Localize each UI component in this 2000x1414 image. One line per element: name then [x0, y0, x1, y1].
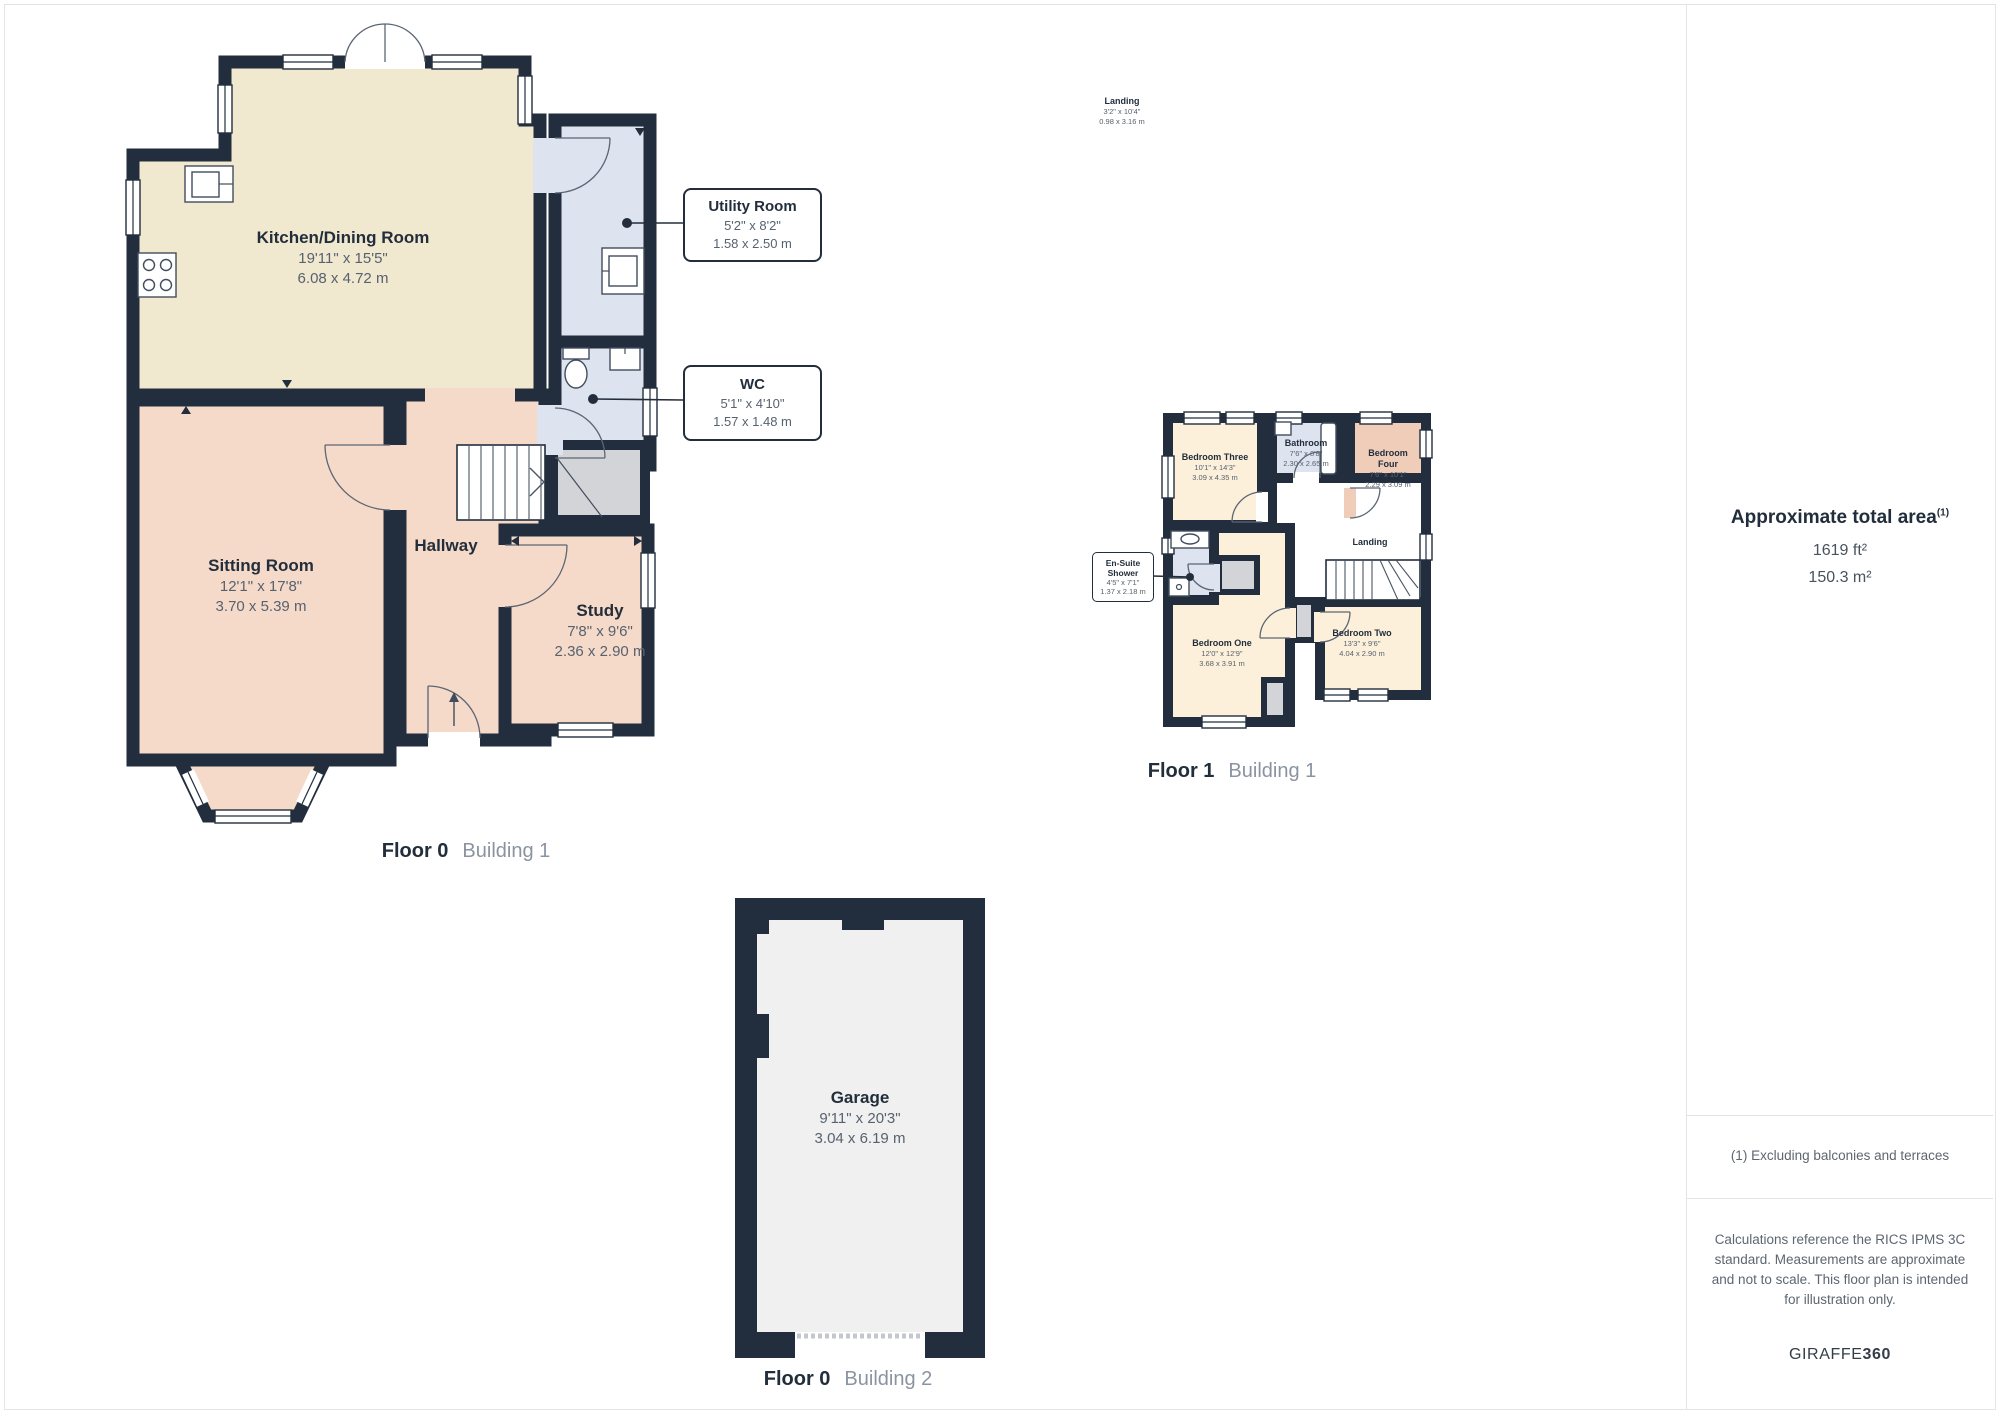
sidebar-divider-2	[1687, 1198, 1993, 1199]
wardrobe-2	[1294, 602, 1314, 640]
hallway-label: Hallway	[414, 534, 477, 557]
total-area-block: Approximate total area(1) 1619 ft² 150.3…	[1687, 507, 1993, 591]
garage-pier-2	[842, 920, 884, 930]
ensuite-basin	[1171, 531, 1209, 548]
bedroom-two-door-opening	[1314, 612, 1326, 642]
wardrobe-3	[1264, 680, 1286, 718]
bedroom-one-label: Bedroom One 12'0" x 12'9" 3.68 x 3.91 m	[1192, 638, 1252, 668]
footnote-text: (1) Excluding balconies and terraces	[1687, 1148, 1993, 1163]
washing-machine	[602, 248, 644, 294]
bedroom-four-label: Bedroom Four 7'6" x 10'1" 2.29 x 3.09 m	[1362, 448, 1414, 489]
utility-door-opening	[533, 138, 562, 193]
total-area-title: Approximate total area(1)	[1687, 507, 1993, 529]
bathroom-door-opening	[1293, 472, 1319, 484]
floor0-building1-caption: Floor 0Building 1	[382, 840, 551, 863]
utility-room	[555, 120, 650, 342]
floor0-building2-caption: Floor 0Building 2	[764, 1368, 933, 1391]
sidebar-divider-1	[1687, 1115, 1993, 1116]
study-label: Study 7'8" x 9'6" 2.36 x 2.90 m	[555, 599, 646, 662]
garage-pier-1	[757, 920, 769, 934]
garage-label: Garage 9'11" x 20'3" 3.04 x 6.19 m	[815, 1086, 906, 1149]
understairs-storage	[553, 445, 645, 520]
wc-basin	[610, 348, 640, 370]
floor1-building1-caption: Floor 1Building 1	[1148, 760, 1317, 783]
bedroom-two-label: Bedroom Two 13'3" x 9'6" 4.04 x 2.90 m	[1332, 628, 1391, 658]
front-door-opening	[428, 732, 480, 749]
ensuite-door-opening	[1208, 564, 1220, 592]
bathroom-label: Bathroom 7'6" x 8'8" 2.30 x 2.65 m	[1283, 438, 1328, 468]
kitchen-hob	[138, 253, 176, 297]
toilet	[563, 348, 589, 388]
kitchen-label: Kitchen/Dining Room 19'11" x 15'5" 6.08 …	[257, 226, 430, 289]
wc-callout: WC 5'1" x 4'10" 1.57 x 1.48 m	[683, 365, 822, 441]
bedroom-three-label: Bedroom Three 10'1" x 14'3" 3.09 x 4.35 …	[1182, 452, 1249, 482]
floor0-building1-plan	[126, 24, 683, 823]
total-area-m: 150.3 m²	[1687, 564, 1993, 591]
landing-float-label: Landing 3'2" x 10'4" 0.98 x 3.16 m	[1099, 96, 1144, 126]
study-door-opening	[498, 545, 512, 607]
total-area-ft: 1619 ft²	[1687, 537, 1993, 564]
wardrobe-1	[1219, 558, 1257, 592]
sidebar: Approximate total area(1) 1619 ft² 150.3…	[1686, 4, 1993, 1410]
bedroom-one-door-opening	[1284, 608, 1296, 638]
kitchen-sink	[185, 166, 233, 202]
utility-room-callout: Utility Room 5'2" x 8'2" 1.58 x 2.50 m	[683, 188, 822, 262]
sitting-room-label: Sitting Room 12'1" x 17'8" 3.70 x 5.39 m	[208, 554, 314, 617]
bedroom-four-door-opening	[1344, 488, 1356, 518]
floor1-stairs	[1326, 560, 1420, 600]
floorplan-page: Kitchen/Dining Room 19'11" x 15'5" 6.08 …	[0, 0, 2000, 1414]
ensuite-callout: En-Suite Shower 4'5" x 7'1" 1.37 x 2.18 …	[1092, 552, 1154, 602]
bathroom-basin	[1275, 422, 1291, 435]
landing-label: Landing	[1353, 537, 1388, 548]
shower-tray	[1169, 578, 1189, 596]
giraffe360-logo: GIRAFFE360	[1687, 1346, 1993, 1364]
kitchen-hall-opening	[425, 388, 515, 402]
sitting-door-opening	[382, 445, 408, 510]
garage-pier-3	[757, 1014, 769, 1058]
bedroom-three-door-opening	[1256, 492, 1268, 522]
floor0-stairs	[457, 445, 545, 520]
disclaimer-text: Calculations reference the RICS IPMS 3C …	[1711, 1230, 1969, 1310]
footnote-marker: (1)	[1937, 508, 1949, 519]
